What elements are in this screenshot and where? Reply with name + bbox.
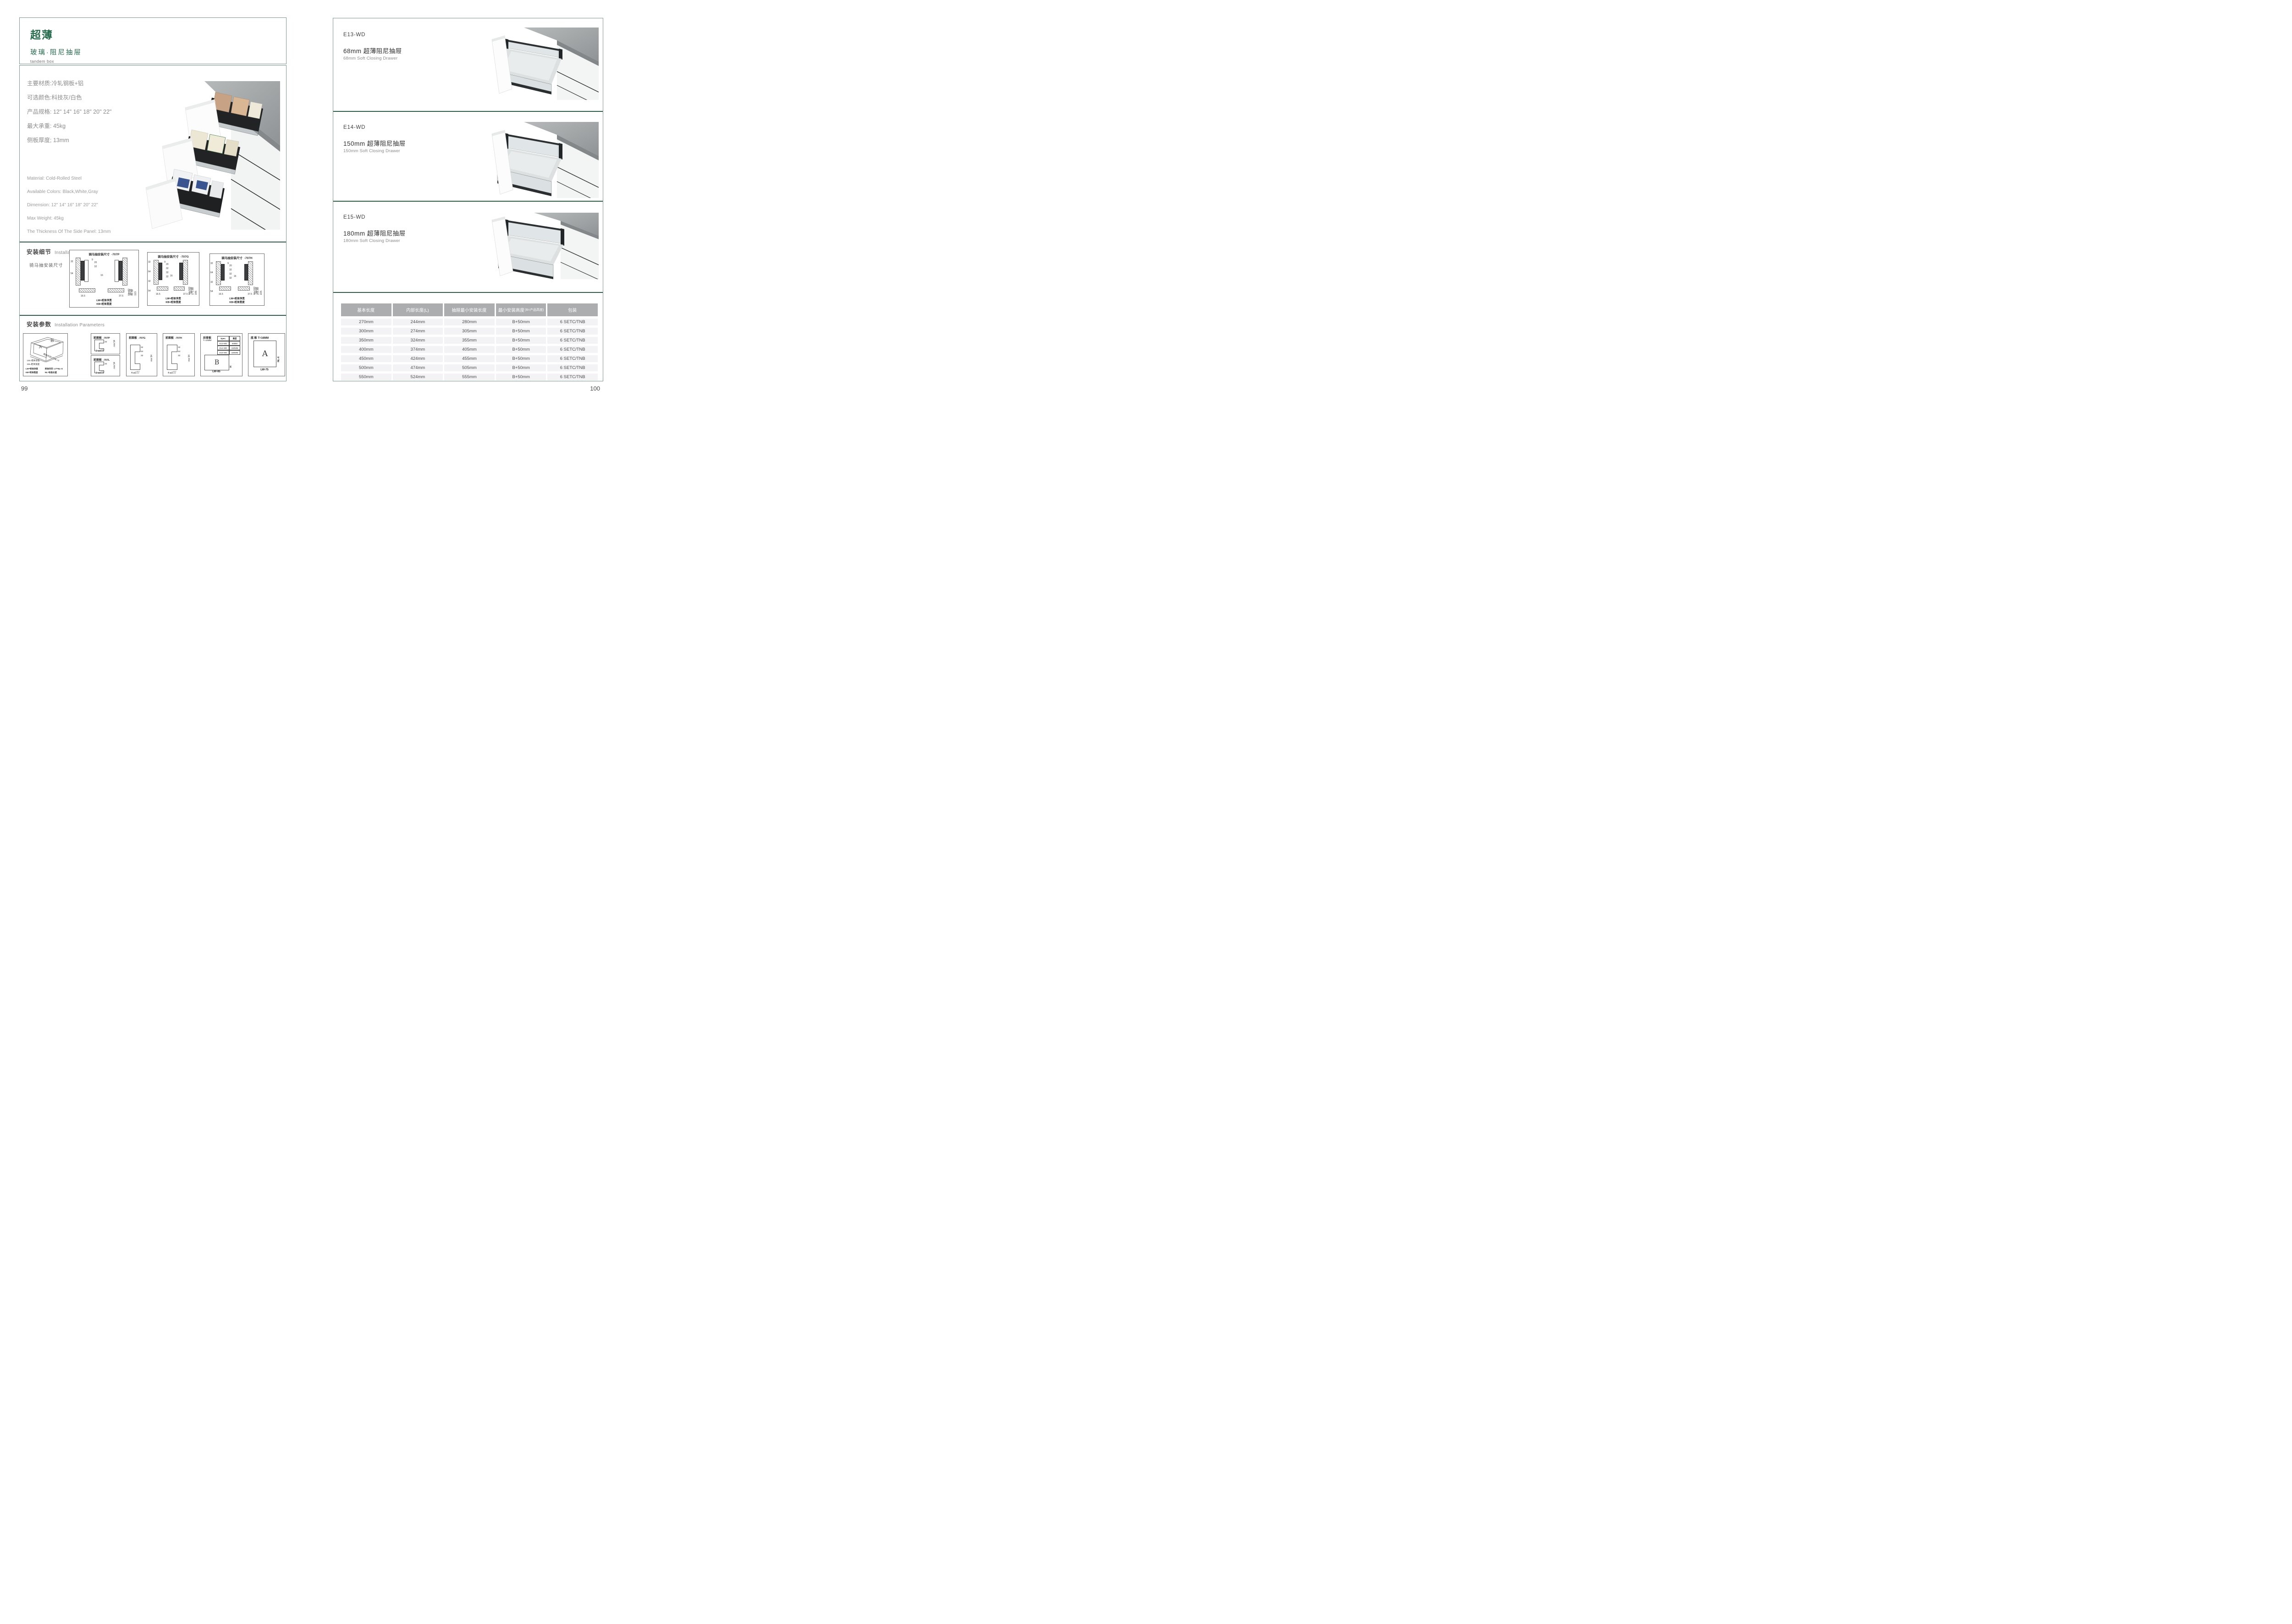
table-row: 270mm 244mm 280mm B+50mm 6 SETC/TNB [341, 319, 598, 325]
diagram-drawing: 9 20 32 16 [76, 258, 127, 293]
spec-line-cn: 可选颜色:科技灰/白色 [27, 91, 111, 105]
iso-legend: LW=柜体净宽 柜体内空: LT=NL+3 KB=柜体宽度 NL=标准长度 [26, 368, 65, 374]
install-diagram-707G: 骑马抽安装尺寸-707G 9 20 32 32 32 16 32 64 32 5… [147, 252, 199, 306]
installation-parameters-heading-en: Installation Parameters [55, 323, 105, 328]
diagram-drawing: 9 20 32 32 32 16 [154, 260, 188, 292]
table-header-cell: 包装 [547, 303, 598, 316]
front-panel-707P: 前面板-707P 32 min 54 2-ø2+0.2-0.1 [91, 333, 120, 354]
spec-line-en: Dimension: 12" 14" 16" 18" 20" 22" [27, 198, 111, 212]
table-row: 350mm 324mm 355mm B+50mm 6 SETC/TNB [341, 337, 598, 344]
table-row: 400mm 374mm 405mm B+50mm 6 SETC/TNB [341, 346, 598, 353]
iso-label-lw: LW=柜体净宽 [27, 359, 40, 362]
table-header-cell: 内部长度(L) [393, 303, 443, 316]
section-divider [333, 201, 603, 202]
back-panel-dim-h: H [230, 357, 232, 368]
product-code: E13-WD [343, 32, 365, 38]
specs-en: Material: Cold-Rolled Steel Available Co… [27, 172, 111, 238]
installation-details-heading-cn: 安装细节 [27, 249, 51, 255]
product-name-en: 68mm Soft Closing Drawer [343, 56, 397, 61]
left-page-content-box: 主要材质:冷轧钢板+铝 可选颜色:科技灰/白色 产品规格: 12" 14" 16… [19, 65, 286, 381]
product-name-cn: 68mm 超薄阻尼抽屉 [343, 46, 402, 55]
spec-line-en: Max Weight: 45kg [27, 212, 111, 225]
drawer-image-180mm [479, 213, 599, 279]
page-subtitle-cn: 玻璃·阻尼抽屉 [30, 47, 82, 57]
iso-label-kb: KB=柜体宽度 [27, 363, 39, 366]
installation-parameters-heading: 安装参数Installation Parameters [27, 319, 105, 329]
front-panel-707L: 前面板-707L 32 min 54 2-ø2+0.2-0.1 [91, 355, 120, 376]
product-name-en: 150mm Soft Closing Drawer [343, 149, 400, 154]
product-name-en: 180mm Soft Closing Drawer [343, 238, 400, 243]
spec-line-cn: 最大承重: 45kg [27, 119, 111, 133]
drawer-image-68mm [479, 28, 599, 100]
product-name-cn: 180mm 超薄阻尼抽屉 [343, 228, 406, 237]
table-row: 450mm 424mm 455mm B+50mm 6 SETC/TNB [341, 355, 598, 362]
specs-cn: 主要材质:冷轧钢板+铝 可选颜色:科技灰/白色 产品规格: 12" 14" 16… [27, 77, 111, 148]
installation-parameters-heading-cn: 安装参数 [27, 321, 51, 328]
section-divider [333, 111, 603, 112]
section-divider [333, 292, 603, 293]
iso-letter-b: B [50, 338, 54, 343]
bottom-panel-diagram: 底 板 T=16MM A NL-6 LW-75 [248, 333, 285, 376]
spec-data-table: 基本长度 内部长度(L) 抽屉最小安装长度 最小安装高度(B=产品高度) 包装 … [341, 303, 598, 383]
bottom-panel-dim-w: LW-75 [253, 369, 275, 371]
install-diagram-707P: 骑马抽安装尺寸-707P 9 20 32 16 32 54 Min82 91.5… [69, 250, 139, 308]
spec-line-en: Available Colors: Black,White,Gray [27, 185, 111, 198]
spec-line-en: Material: Cold-Rolled Steel [27, 172, 111, 185]
table-header-cell: 抽屉最小安装长度 [444, 303, 495, 316]
bottom-panel-dim-v: NL-6 [277, 346, 280, 362]
right-page-content-box: E13-WD 68mm 超薄阻尼抽屉 68mm Soft Closing Dra… [333, 18, 603, 381]
product-photo-three-drawers [136, 77, 280, 230]
diagram-drawing: 9 20 32 32 32 16 [216, 261, 253, 292]
spec-line-cn: 产品规格: 12" 14" 16" 18" 20" 22" [27, 105, 111, 119]
product-code: E15-WD [343, 215, 365, 220]
iso-cabinet-diagram: B A LW=柜体净宽 柜体内空LT=NL+3 KB=柜体宽度 LW=柜体净宽 … [23, 333, 68, 376]
table-header-row: 基本长度 内部长度(L) 抽屉最小安装长度 最小安装高度(B=产品高度) 包装 [341, 303, 598, 316]
drawer-image-150mm [479, 122, 599, 198]
page-title: 超薄 [30, 26, 53, 42]
installation-details-subheading: 骑马抽安装尺寸 [29, 262, 63, 268]
left-page-title-box: 超薄 玻璃·阻尼抽屉 tandem box [19, 17, 286, 64]
table-row: 500mm 474mm 505mm B+50mm 6 SETC/TNB [341, 364, 598, 371]
page-number-right: 100 [584, 385, 600, 392]
product-code: E14-WD [343, 125, 365, 130]
spec-line-cn: 侧板厚度; 13mm [27, 133, 111, 148]
bottom-panel-sketch: A [253, 341, 276, 367]
front-panel-707G: 前面板-707G 32 64 32 min 54 4-ø2+0.2-0.1 [126, 333, 157, 376]
back-panel-diagram: 后背板 T=16MM Spec. 高度 E13-WD 68MM E14-WD 1… [200, 333, 242, 376]
section-divider [20, 242, 286, 242]
install-diagram-707H: 骑马抽安装尺寸-707H 9 20 32 32 32 16 32 64 32 5… [209, 253, 264, 306]
back-panel-thickness: T=16MM [203, 339, 211, 341]
table-row: 550mm 524mm 555mm B+50mm 6 SETC/TNB [341, 374, 598, 380]
section-divider [20, 315, 286, 316]
iso-cabinet-wireframe: B A [24, 335, 67, 362]
spec-line-cn: 主要材质:冷轧钢板+铝 [27, 77, 111, 91]
back-panel-sketch: B [204, 355, 229, 370]
back-panel-spec-table: Spec. 高度 E13-WD 68MM E14-WD 150MM E15-WD… [217, 336, 240, 355]
spec-line-en: The Thickness Of The Side Panel: 13mm [27, 225, 111, 238]
table-header-cell: 基本长度 [341, 303, 391, 316]
front-panel-707H: 前面板-707H 32 64 32 min 54 4-ø2+0.2-0.1 [163, 333, 195, 376]
table-row: 300mm 274mm 305mm B+50mm 6 SETC/TNB [341, 328, 598, 335]
page-subtitle-en: tandem box [30, 59, 54, 64]
product-name-cn: 150mm 超薄阻尼抽屉 [343, 138, 406, 148]
back-panel-dim-w: LW-85 [204, 370, 228, 373]
table-header-cell: 最小安装高度(B=产品高度) [496, 303, 546, 316]
page-number-left: 99 [21, 385, 28, 392]
svg-text:A: A [38, 345, 42, 350]
